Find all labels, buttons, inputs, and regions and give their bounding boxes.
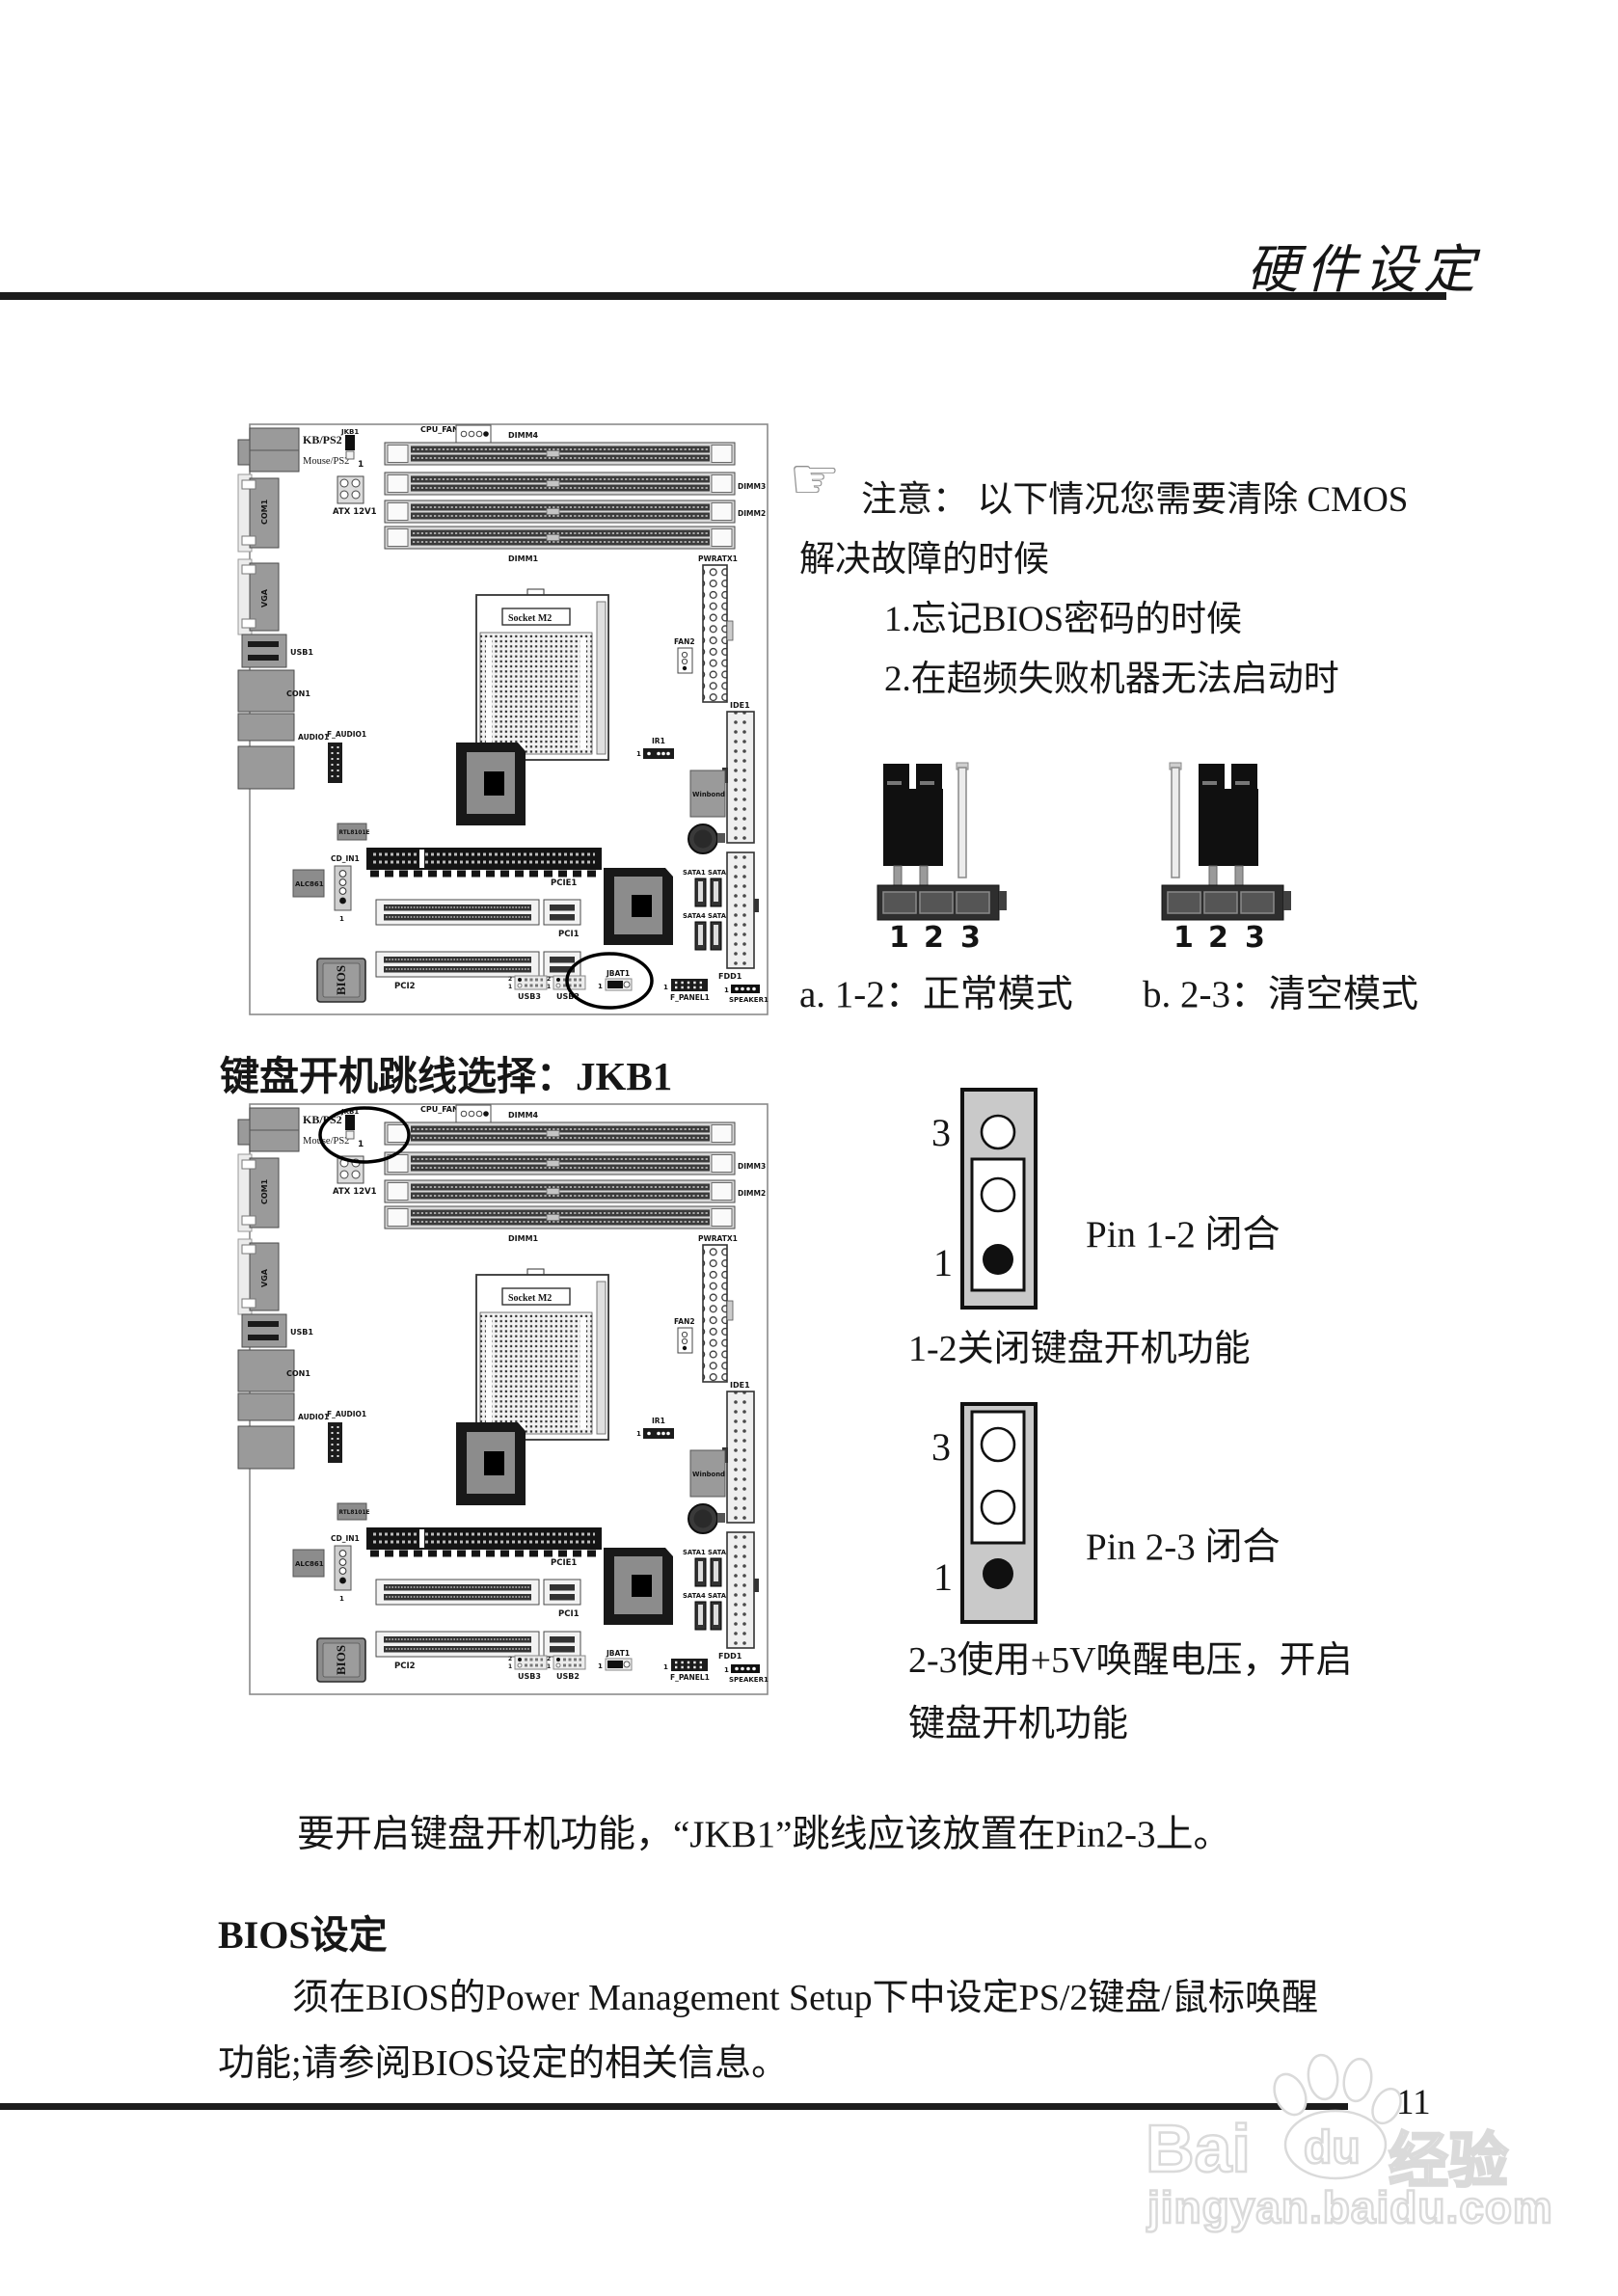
pin1-label: 1 <box>933 1241 953 1284</box>
pwratx1-label: PWRATX1 <box>698 554 738 563</box>
svg-text:COM1: COM1 <box>260 499 269 525</box>
motherboard-diagram-1: KB/PS2 Mouse/PS2 JKB1 1 CPU_FAN1 <box>213 419 772 1016</box>
svg-text:1: 1 <box>508 984 512 990</box>
svg-text:2: 2 <box>547 976 551 983</box>
footer-rule <box>0 2103 1348 2110</box>
mouse-ps2-label: Mouse/PS2 <box>303 456 349 467</box>
mode-caption-a: a. 1-2：正常模式 <box>799 964 1073 1018</box>
speaker1-label: SPEAKER1 <box>729 996 769 1004</box>
socket-label: Socket M2 <box>508 613 552 624</box>
lan-chip: RTL8101E <box>337 824 369 840</box>
pci2-label: PCI2 <box>394 982 416 991</box>
dimm2-label: DIMM2 <box>738 509 766 518</box>
bare-pin-3 <box>957 763 968 878</box>
atx-12v-connector <box>337 476 364 503</box>
dimm1-slot <box>385 527 735 549</box>
jbat1-label: JBAT1 <box>606 969 630 978</box>
sata4-label: SATA4 <box>683 912 706 920</box>
fdd1-label: FDD1 <box>718 972 742 981</box>
southbridge-chip <box>604 868 673 945</box>
sata1-label: SATA1 <box>683 869 706 877</box>
jkb1-pin-diagram-2: 3 1 <box>924 1400 1059 1627</box>
audio-codec-chip: ALC861 <box>293 870 324 897</box>
fan2-label: FAN2 <box>674 637 695 646</box>
f-audio1-label: F_AUDIO1 <box>327 730 366 739</box>
dimm4-label: DIMM4 <box>508 431 539 440</box>
svg-text:1: 1 <box>358 460 364 470</box>
ps2-port <box>238 428 299 472</box>
svg-text:BIOS: BIOS <box>334 965 348 995</box>
pin-label-1: 1 <box>1173 921 1194 955</box>
fan2-connector <box>678 648 692 673</box>
notice-line2: 解决故障的时候 <box>799 529 1049 581</box>
svg-text:JKB1: JKB1 <box>340 428 359 436</box>
notice-item2: 2.在超频失败机器无法启动时 <box>884 649 1339 701</box>
svg-text:1: 1 <box>339 915 344 923</box>
pin-2-3-description-line1: 2-3使用+5V唤醒电压，开启 <box>908 1630 1353 1683</box>
bios-section-heading: BIOS设定 <box>218 1904 388 1959</box>
ide1-connector <box>722 712 754 843</box>
pin1-label: 1 <box>933 1555 953 1599</box>
usb1-port <box>242 635 286 667</box>
northbridge-chip <box>456 743 526 825</box>
pci2-slot <box>376 952 580 977</box>
pcie1-slot <box>366 848 602 874</box>
usb3-label: USB3 <box>518 992 541 1001</box>
vga-port: VGA <box>238 559 279 635</box>
pin-1-2-description: 1-2关闭键盘开机功能 <box>908 1318 1251 1371</box>
jumper-cap-2-3 <box>1199 764 1258 887</box>
pointing-hand-icon: ☞ <box>789 446 841 513</box>
dimm3-label: DIMM3 <box>738 482 766 491</box>
f-audio1-header <box>328 743 342 783</box>
atx-12v-label: ATX 12V1 <box>333 507 377 517</box>
winbond-chip: Winbond <box>690 770 725 817</box>
pin-2-3-caption: Pin 2-3 闭合 <box>1086 1517 1281 1571</box>
ide1-label: IDE1 <box>730 701 750 710</box>
jumper-cap-1-2 <box>883 764 943 887</box>
header-rule <box>0 292 1446 300</box>
jumper-diagram-normal-mode: 1 2 3 <box>876 758 1011 951</box>
cpu-socket: Socket M2 <box>476 589 608 760</box>
notice-line1: 注意： 以下情况您需要清除 CMOS <box>861 470 1408 522</box>
watermark-du: du <box>1304 2121 1361 2174</box>
watermark-bai: Bai <box>1146 2110 1251 2187</box>
dimm4-slot <box>385 443 735 465</box>
svg-text:1: 1 <box>636 750 641 758</box>
pin-1-2-caption: Pin 1-2 闭合 <box>1086 1204 1281 1258</box>
audio1-label: AUDIO1 <box>298 733 329 742</box>
svg-text:1: 1 <box>724 986 729 994</box>
audio-jack-block1 <box>238 714 294 741</box>
audio-jack-block2 <box>238 746 294 789</box>
svg-text:RTL8101E: RTL8101E <box>339 830 370 836</box>
jumper-diagram-clear-mode: 1 2 3 <box>1160 758 1295 951</box>
svg-text:VGA: VGA <box>260 588 269 608</box>
pin3-label: 3 <box>931 1425 951 1469</box>
watermark-url: jingyan.baidu.com <box>1147 2181 1553 2233</box>
cd-in1-label: CD_IN1 <box>331 854 360 863</box>
bios-chip: BIOS <box>317 959 365 1002</box>
pin3-label: 3 <box>931 1111 951 1154</box>
pin-label-1: 1 <box>889 921 909 955</box>
kb-ps2-label: KB/PS2 <box>303 433 342 446</box>
bios-paragraph-line1: 须在BIOS的Power Management Setup下中设定PS/2键盘/… <box>292 1967 1318 2020</box>
cpu-fan1-connector <box>456 425 491 443</box>
jkb1-section-heading: 键盘开机跳线选择：JKB1 <box>220 1043 672 1101</box>
pin-label-2: 2 <box>1208 921 1228 955</box>
pin-2-3-description-line2: 键盘开机功能 <box>908 1693 1128 1746</box>
svg-text:Winbond: Winbond <box>692 791 725 798</box>
svg-text:1: 1 <box>547 984 551 990</box>
pin-label-3: 3 <box>1245 921 1265 955</box>
svg-text:1: 1 <box>663 984 668 991</box>
manual-page: 硬件设定 ☞ 注意： 以下情况您需要清除 CMOS 解决故障的时候 1.忘记BI… <box>0 0 1618 2296</box>
pin-label-2: 2 <box>924 921 944 955</box>
notice-item1: 1.忘记BIOS密码的时候 <box>884 589 1242 641</box>
pci1-slot <box>376 900 580 925</box>
pcie1-label: PCIE1 <box>551 878 577 888</box>
bios-paragraph-line2: 功能;请参阅BIOS设定的相关信息。 <box>218 2033 788 2086</box>
dimm1-label: DIMM1 <box>508 554 539 563</box>
fdd1-connector <box>727 852 759 968</box>
pin-label-3: 3 <box>960 921 981 955</box>
bare-pin-1 <box>1170 763 1181 878</box>
usb1-label: USB1 <box>290 648 313 657</box>
com1-port: COM1 <box>238 474 279 552</box>
jkb1-note: 要开启键盘开机功能，“JKB1”跳线应该放置在Pin2-3上。 <box>297 1804 1231 1858</box>
svg-text:1: 1 <box>598 983 603 990</box>
con1-label: CON1 <box>286 689 310 698</box>
f-panel1-label: F_PANEL1 <box>670 993 710 1002</box>
jumper-base <box>1162 885 1291 920</box>
svg-text:ALC861: ALC861 <box>295 880 324 888</box>
pci1-label: PCI1 <box>558 930 580 939</box>
jumper-base <box>877 885 1007 920</box>
svg-text:2: 2 <box>508 976 512 983</box>
dimm2-slot <box>385 500 735 523</box>
mode-caption-b: b. 2-3：清空模式 <box>1143 964 1418 1018</box>
jkb1-pin-diagram-1: 3 1 <box>924 1086 1059 1312</box>
ir1-label: IR1 <box>652 737 665 745</box>
dimm3-slot <box>385 473 735 495</box>
motherboard-diagram-2 <box>213 1098 772 1696</box>
